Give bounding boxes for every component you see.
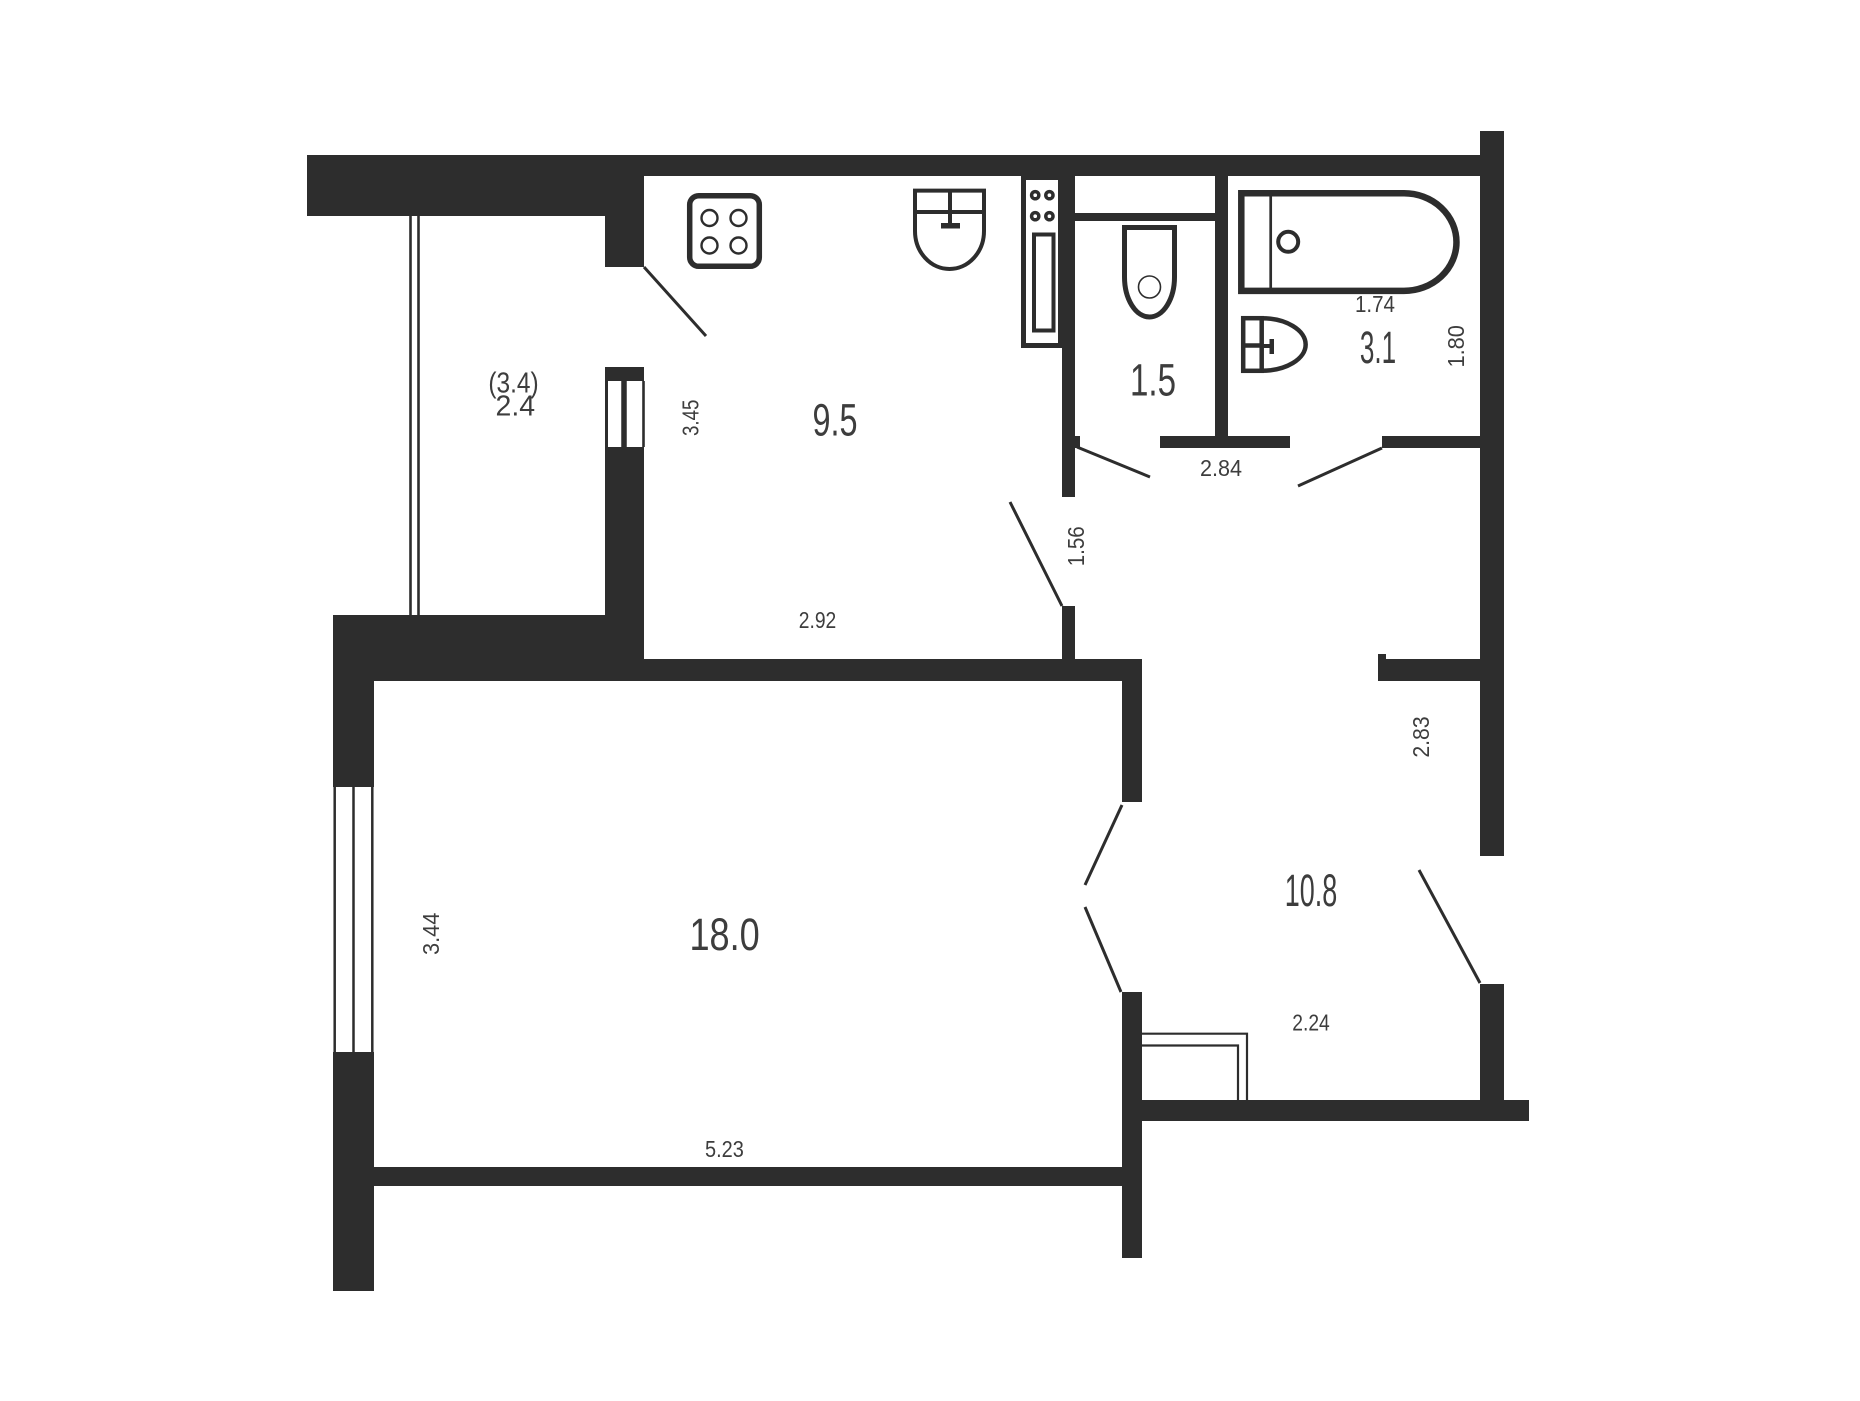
svg-text:1.56: 1.56 — [1063, 526, 1089, 566]
svg-text:1.5: 1.5 — [1130, 355, 1176, 406]
svg-text:2.83: 2.83 — [1408, 716, 1434, 757]
svg-text:2.4: 2.4 — [496, 391, 536, 423]
svg-text:2.84: 2.84 — [1200, 455, 1242, 481]
svg-text:2.24: 2.24 — [1292, 1010, 1330, 1036]
svg-text:3.45: 3.45 — [678, 400, 704, 436]
svg-text:18.0: 18.0 — [689, 909, 759, 960]
svg-text:3.44: 3.44 — [418, 913, 444, 956]
svg-text:2.92: 2.92 — [799, 607, 837, 633]
svg-text:10.8: 10.8 — [1285, 865, 1338, 916]
svg-text:5.23: 5.23 — [705, 1136, 744, 1162]
svg-text:1.74: 1.74 — [1355, 291, 1395, 317]
svg-text:3.1: 3.1 — [1360, 322, 1396, 373]
svg-text:1.80: 1.80 — [1443, 325, 1469, 368]
svg-text:9.5: 9.5 — [813, 395, 858, 446]
